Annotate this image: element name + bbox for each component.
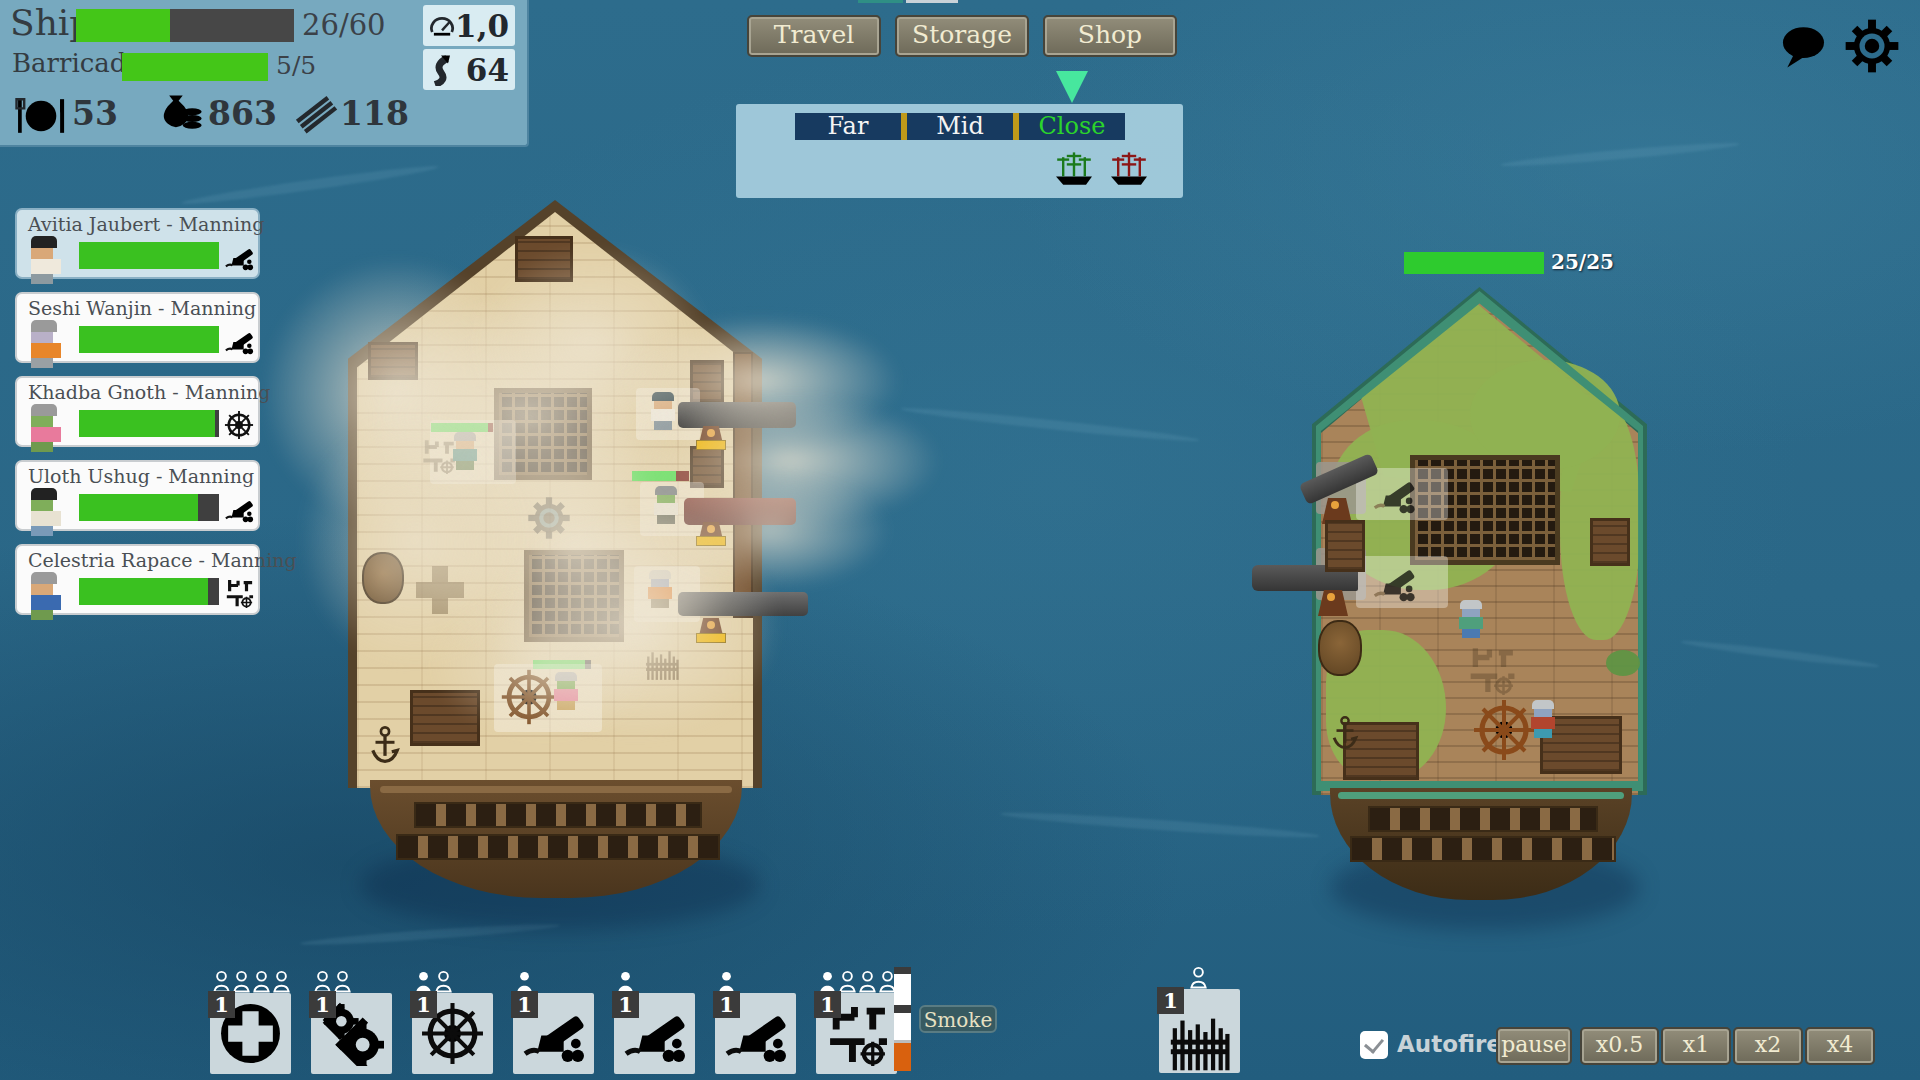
range-option-far[interactable]: Far xyxy=(795,113,901,140)
offscreen-bar-sliver xyxy=(858,0,903,3)
speed-x4-button[interactable]: x4 xyxy=(1805,1027,1875,1065)
speed-value: 1,0 xyxy=(455,8,509,44)
chat-icon[interactable] xyxy=(1776,25,1828,69)
crew-hp-bar xyxy=(79,578,219,605)
planks-icon xyxy=(294,94,338,134)
gauge-segment xyxy=(894,1005,911,1012)
enemy-crew-sprite[interactable] xyxy=(1458,600,1484,638)
cannon-ghost-icon xyxy=(1372,472,1416,516)
gauge-segment xyxy=(894,967,911,974)
storage-button[interactable]: Storage xyxy=(895,15,1029,57)
action-cannon-3: 1 xyxy=(715,965,796,1074)
cannon-icon xyxy=(224,242,254,272)
crew-hp-bar xyxy=(79,410,219,437)
wheel-icon xyxy=(224,410,254,440)
wave-streak xyxy=(1500,140,1740,170)
level-badge: 1 xyxy=(208,991,235,1018)
game-screen: 25/25 Ship 26/60 Barricade 5/5 53 863 11… xyxy=(0,0,1920,1080)
action-heal: 1 xyxy=(210,965,291,1074)
avatar xyxy=(31,572,65,620)
heal-button[interactable]: 1 xyxy=(210,993,291,1074)
gold-count: 863 xyxy=(208,94,277,133)
level-badge: 1 xyxy=(1157,987,1184,1014)
crew-card[interactable]: Avitia Jaubert - Manning xyxy=(15,208,260,279)
crew-slots xyxy=(311,965,392,993)
enemy-helmsman-sprite[interactable] xyxy=(1530,700,1556,738)
gauge-segment xyxy=(894,1043,911,1071)
speed-indicator: 1,0 xyxy=(423,5,515,46)
distance-value: 64 xyxy=(466,52,509,88)
travel-button[interactable]: Travel xyxy=(747,15,881,57)
level-badge: 1 xyxy=(511,991,538,1018)
level-badge: 1 xyxy=(612,991,639,1018)
crew-slots xyxy=(715,965,796,993)
crew-name: Seshi Wanjin - Manning xyxy=(28,297,256,319)
repair-button[interactable]: 1 xyxy=(311,993,392,1074)
ship-status-panel: Ship 26/60 Barricade 5/5 53 863 118 1,0 … xyxy=(0,0,529,147)
barricade-button[interactable]: 1 xyxy=(1159,989,1240,1073)
deckplan-ghost xyxy=(1462,645,1520,695)
enemy-ship-marker-icon xyxy=(1108,150,1150,186)
crew-slots xyxy=(412,965,493,993)
gold-icon xyxy=(157,92,203,134)
avatar xyxy=(31,404,65,452)
speed-x1-button[interactable]: x1 xyxy=(1661,1027,1731,1065)
action-deck-stations: 1 xyxy=(816,965,897,1074)
speed-x0.5-button[interactable]: x0.5 xyxy=(1580,1027,1659,1065)
crew-hp-bar xyxy=(79,242,219,269)
crew-name: Khadba Gnoth - Manning xyxy=(28,381,270,403)
anchor-icon xyxy=(368,726,402,764)
planks-count: 118 xyxy=(340,94,409,133)
wave-streak xyxy=(1000,809,1320,841)
enemy-ship-wheel xyxy=(1472,698,1536,762)
pause-button[interactable]: pause xyxy=(1496,1027,1572,1065)
crew-name: Uloth Ushug - Manning xyxy=(28,465,254,487)
smoke-button[interactable]: Smoke xyxy=(919,1005,997,1033)
helm-button[interactable]: 1 xyxy=(412,993,493,1074)
crew-slots xyxy=(614,965,695,993)
speed-x2-button[interactable]: x2 xyxy=(1733,1027,1803,1065)
crew-name: Avitia Jaubert - Manning xyxy=(28,213,264,235)
level-badge: 1 xyxy=(410,991,437,1018)
deck-stations-button[interactable]: 1 xyxy=(816,993,897,1074)
crew-card[interactable]: Uloth Ushug - Manning xyxy=(15,460,260,531)
barricade-icon xyxy=(1167,1011,1232,1076)
anchor-icon xyxy=(1330,716,1360,750)
crew-name: Celestria Rapace - Manning xyxy=(28,549,297,571)
crew-hp-bar xyxy=(79,326,219,353)
level-badge: 1 xyxy=(814,991,841,1018)
wave-streak xyxy=(181,162,440,208)
gauge-segment xyxy=(894,974,911,1005)
cannon-icon xyxy=(224,326,254,356)
enemy-barrel xyxy=(1318,620,1362,676)
speedometer-icon xyxy=(429,11,455,40)
ship-hp-bar xyxy=(76,9,294,42)
range-arrow-indicator xyxy=(1056,71,1088,103)
avatar xyxy=(31,236,65,284)
crew-card[interactable]: Khadba Gnoth - Manning xyxy=(15,376,260,447)
avatar xyxy=(31,320,65,368)
shop-button[interactable]: Shop xyxy=(1043,15,1177,57)
player-ship-marker-icon xyxy=(1053,150,1095,186)
range-option-mid[interactable]: Mid xyxy=(907,113,1013,140)
range-panel: Far Mid Close xyxy=(736,104,1183,198)
deck-plan-icon xyxy=(224,578,254,608)
crew-slots xyxy=(816,965,897,993)
food-count: 53 xyxy=(72,94,118,133)
range-selector: Far Mid Close xyxy=(795,113,1125,140)
range-option-close[interactable]: Close xyxy=(1019,113,1125,140)
cannon-button[interactable]: 1 xyxy=(715,993,796,1074)
distance-indicator: 64 xyxy=(423,49,515,90)
enemy-locker xyxy=(1325,520,1365,572)
crew-slots xyxy=(1159,961,1240,989)
offscreen-bar-sliver xyxy=(906,0,958,3)
enemy-hp-bar xyxy=(1404,252,1544,274)
crew-slots xyxy=(513,965,594,993)
action-helm: 1 xyxy=(412,965,493,1074)
wave-streak xyxy=(1680,638,1879,670)
autofire-label: Autofire xyxy=(1397,1031,1502,1057)
plant-sprig xyxy=(1606,650,1640,676)
avatar xyxy=(31,488,65,536)
action-cannon-2: 1 xyxy=(614,965,695,1074)
cannon-button[interactable]: 1 xyxy=(513,993,594,1074)
level-badge: 1 xyxy=(713,991,740,1018)
grass-patch xyxy=(1470,360,1620,470)
crew-slots xyxy=(210,965,291,993)
enemy-locker xyxy=(1590,518,1630,566)
action-barricade: 1 xyxy=(1159,961,1240,1073)
cannon-button[interactable]: 1 xyxy=(614,993,695,1074)
smoke-cloud xyxy=(430,590,660,740)
cannon-icon xyxy=(224,494,254,524)
crew-card[interactable]: Celestria Rapace - Manning xyxy=(15,544,260,615)
level-badge: 1 xyxy=(309,991,336,1018)
barricade-value: 5/5 xyxy=(276,51,316,80)
cannon-ghost-icon xyxy=(1372,560,1416,604)
route-icon xyxy=(429,53,459,86)
food-icon xyxy=(15,96,67,136)
autofire-checkbox[interactable] xyxy=(1360,1031,1388,1059)
barricade-bar xyxy=(122,53,268,81)
crew-hp-bar xyxy=(79,494,219,521)
action-repair: 1 xyxy=(311,965,392,1074)
gauge-segment xyxy=(894,1013,911,1040)
ship-hp-value: 26/60 xyxy=(302,8,386,42)
settings-gear-icon[interactable] xyxy=(1844,18,1900,74)
action-cannon-1: 1 xyxy=(513,965,594,1074)
cannon-smoke xyxy=(650,470,890,590)
enemy-hp-text: 25/25 xyxy=(1551,250,1614,274)
smoke-gauge xyxy=(894,967,911,1071)
crew-card[interactable]: Seshi Wanjin - Manning xyxy=(15,292,260,363)
wave-streak xyxy=(900,404,1199,444)
